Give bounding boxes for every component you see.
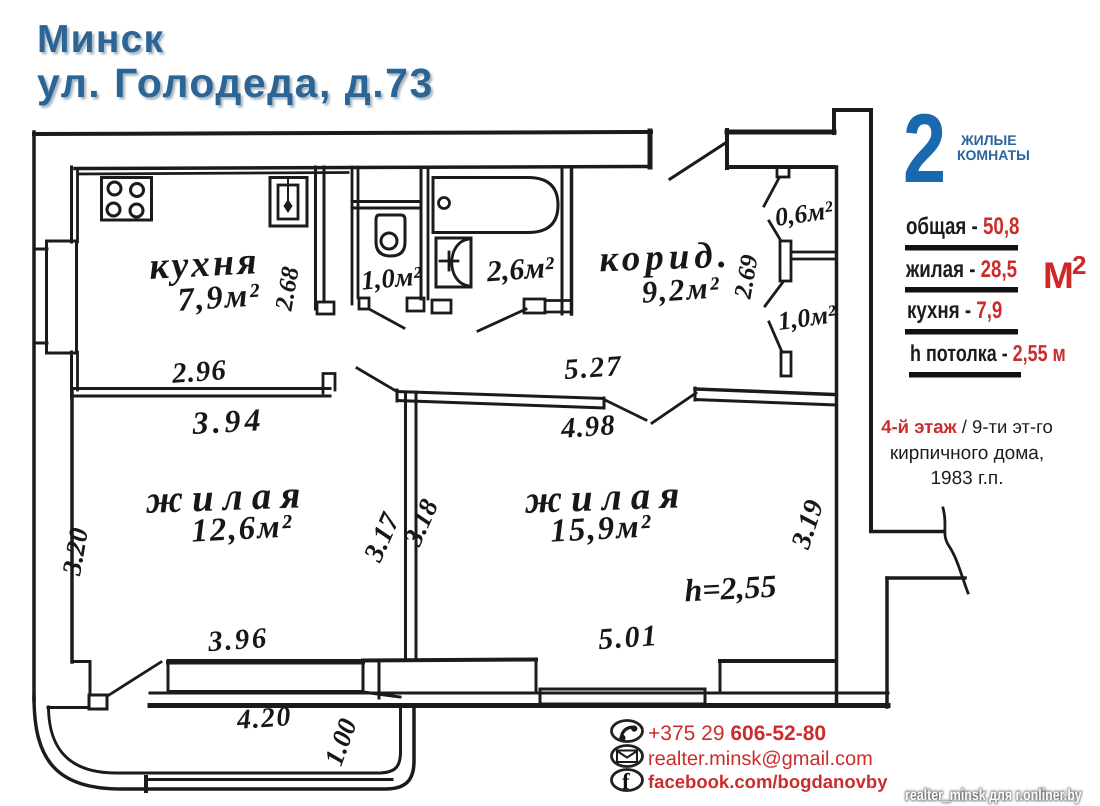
svg-text:М: М xyxy=(1043,255,1074,296)
svg-text:h потолка - 2,55 м: h потолка - 2,55 м xyxy=(910,340,1066,366)
svg-text:кирпичного дома,: кирпичного дома, xyxy=(890,443,1044,464)
svg-text:realter.minsk@gmail.com: realter.minsk@gmail.com xyxy=(648,748,873,770)
svg-text:2: 2 xyxy=(1072,250,1086,280)
svg-text:12,6м²: 12,6м² xyxy=(190,508,294,549)
svg-text:facebook.com/bogdanovby: facebook.com/bogdanovby xyxy=(648,771,888,792)
svg-text:3.19: 3.19 xyxy=(785,496,830,553)
svg-text:кухня - 7,9: кухня - 7,9 xyxy=(907,297,1002,324)
svg-text:жилая - 28,5: жилая - 28,5 xyxy=(905,256,1017,283)
svg-text:1,0м²: 1,0м² xyxy=(360,260,424,295)
svg-text:4.20: 4.20 xyxy=(235,701,293,736)
svg-text:2.96: 2.96 xyxy=(170,354,228,390)
svg-text:КОМНАТЫ: КОМНАТЫ xyxy=(957,147,1030,163)
svg-text:ул. Голодеда, д.73: ул. Голодеда, д.73 xyxy=(37,60,434,106)
svg-text:9,2м²: 9,2м² xyxy=(641,269,723,309)
svg-text:realter_minsk для r.onliner.by: realter_minsk для r.onliner.by xyxy=(905,787,1082,804)
svg-text:4.98: 4.98 xyxy=(559,409,617,445)
svg-text:f: f xyxy=(622,769,630,794)
svg-text:3.96: 3.96 xyxy=(206,622,270,658)
svg-text:1.00: 1.00 xyxy=(318,714,363,769)
svg-text:ЖИЛЫЕ: ЖИЛЫЕ xyxy=(960,132,1017,148)
svg-text:4-й этаж / 9-ти эт-го: 4-й этаж / 9-ти эт-го xyxy=(881,416,1053,437)
svg-text:15,9м²: 15,9м² xyxy=(549,508,653,549)
svg-text:Минск: Минск xyxy=(37,18,164,61)
svg-text:общая - 50,8: общая - 50,8 xyxy=(906,213,1019,240)
svg-text:2,6м²: 2,6м² xyxy=(485,251,556,289)
svg-text:5.01: 5.01 xyxy=(597,619,660,656)
svg-text:2: 2 xyxy=(903,93,946,203)
svg-text:3.20: 3.20 xyxy=(56,525,94,578)
svg-text:h=2,55: h=2,55 xyxy=(684,568,778,609)
svg-text:3.94: 3.94 xyxy=(191,401,266,441)
svg-text:+375 29 606-52-80: +375 29 606-52-80 xyxy=(648,722,826,745)
svg-text:1983 г.п.: 1983 г.п. xyxy=(930,468,1003,489)
svg-text:0,6м²: 0,6м² xyxy=(773,195,836,232)
svg-text:7,9м²: 7,9м² xyxy=(176,277,262,319)
svg-text:2.68: 2.68 xyxy=(270,264,304,313)
svg-text:5.27: 5.27 xyxy=(563,350,624,386)
svg-text:1,0м²: 1,0м² xyxy=(776,299,839,336)
svg-text:2.69: 2.69 xyxy=(729,252,763,301)
